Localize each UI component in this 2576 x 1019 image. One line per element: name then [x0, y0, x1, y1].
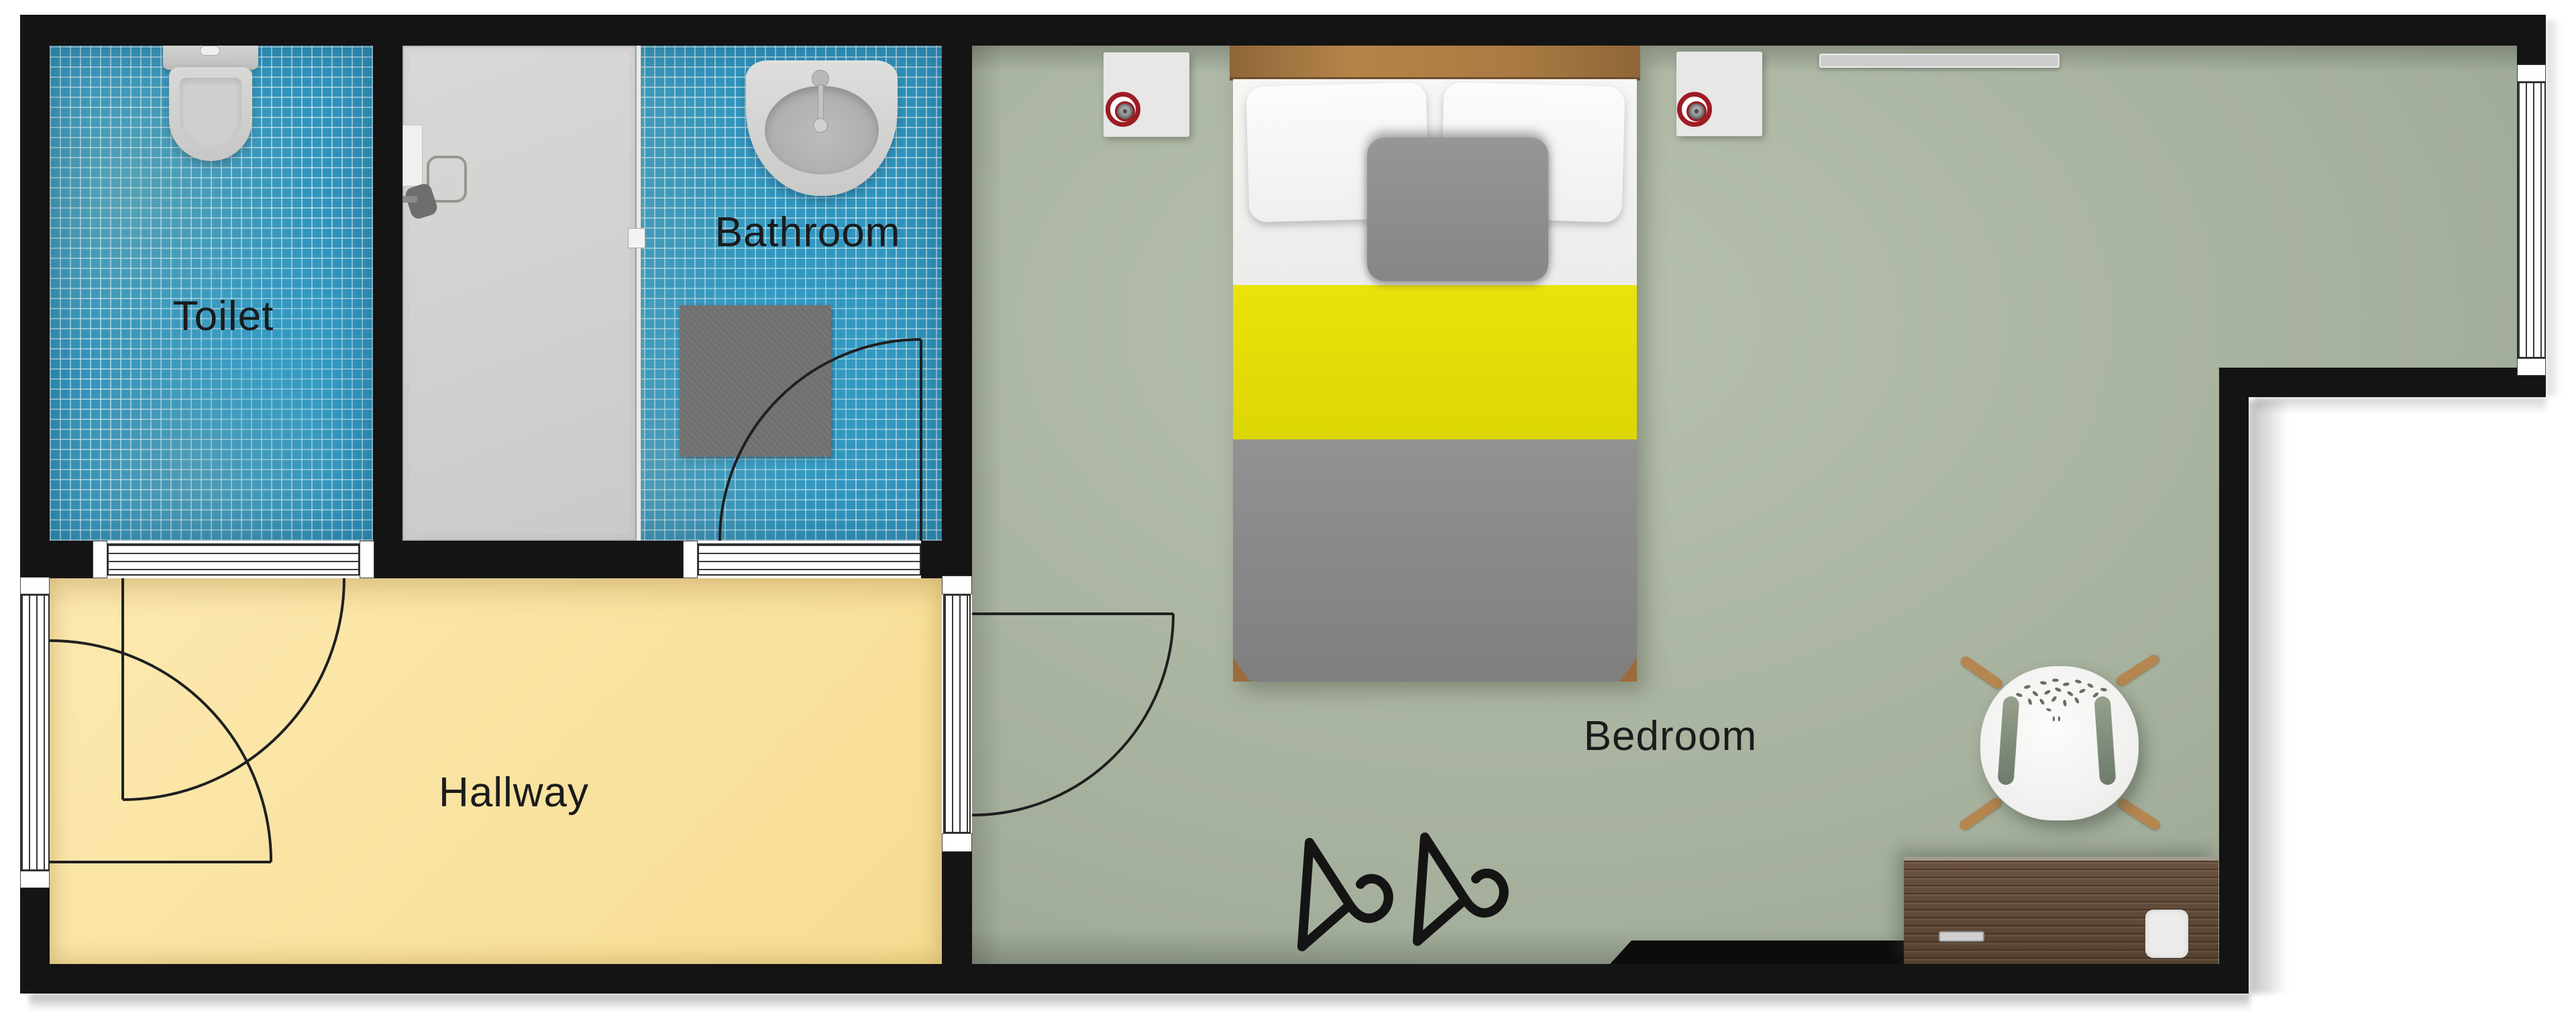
bedroom-door-swing-icon [972, 614, 1173, 815]
line-art-overlay [0, 0, 2576, 1019]
entry-door-swing-icon [50, 641, 271, 862]
toilet-door-swing-icon [123, 578, 344, 800]
clothes-hanger-icon [1302, 843, 1389, 947]
floor-plan: Toilet Bathroom Hallway Bedroom [0, 0, 2576, 1019]
bathroom-door-swing-icon [720, 339, 921, 541]
toilet-room-label: Toilet [123, 292, 324, 340]
hallway-room-label: Hallway [380, 769, 648, 816]
clothes-hanger-icon [1417, 837, 1504, 941]
bedroom-room-label: Bedroom [1536, 712, 1805, 760]
bathroom-room-label: Bathroom [674, 209, 942, 256]
